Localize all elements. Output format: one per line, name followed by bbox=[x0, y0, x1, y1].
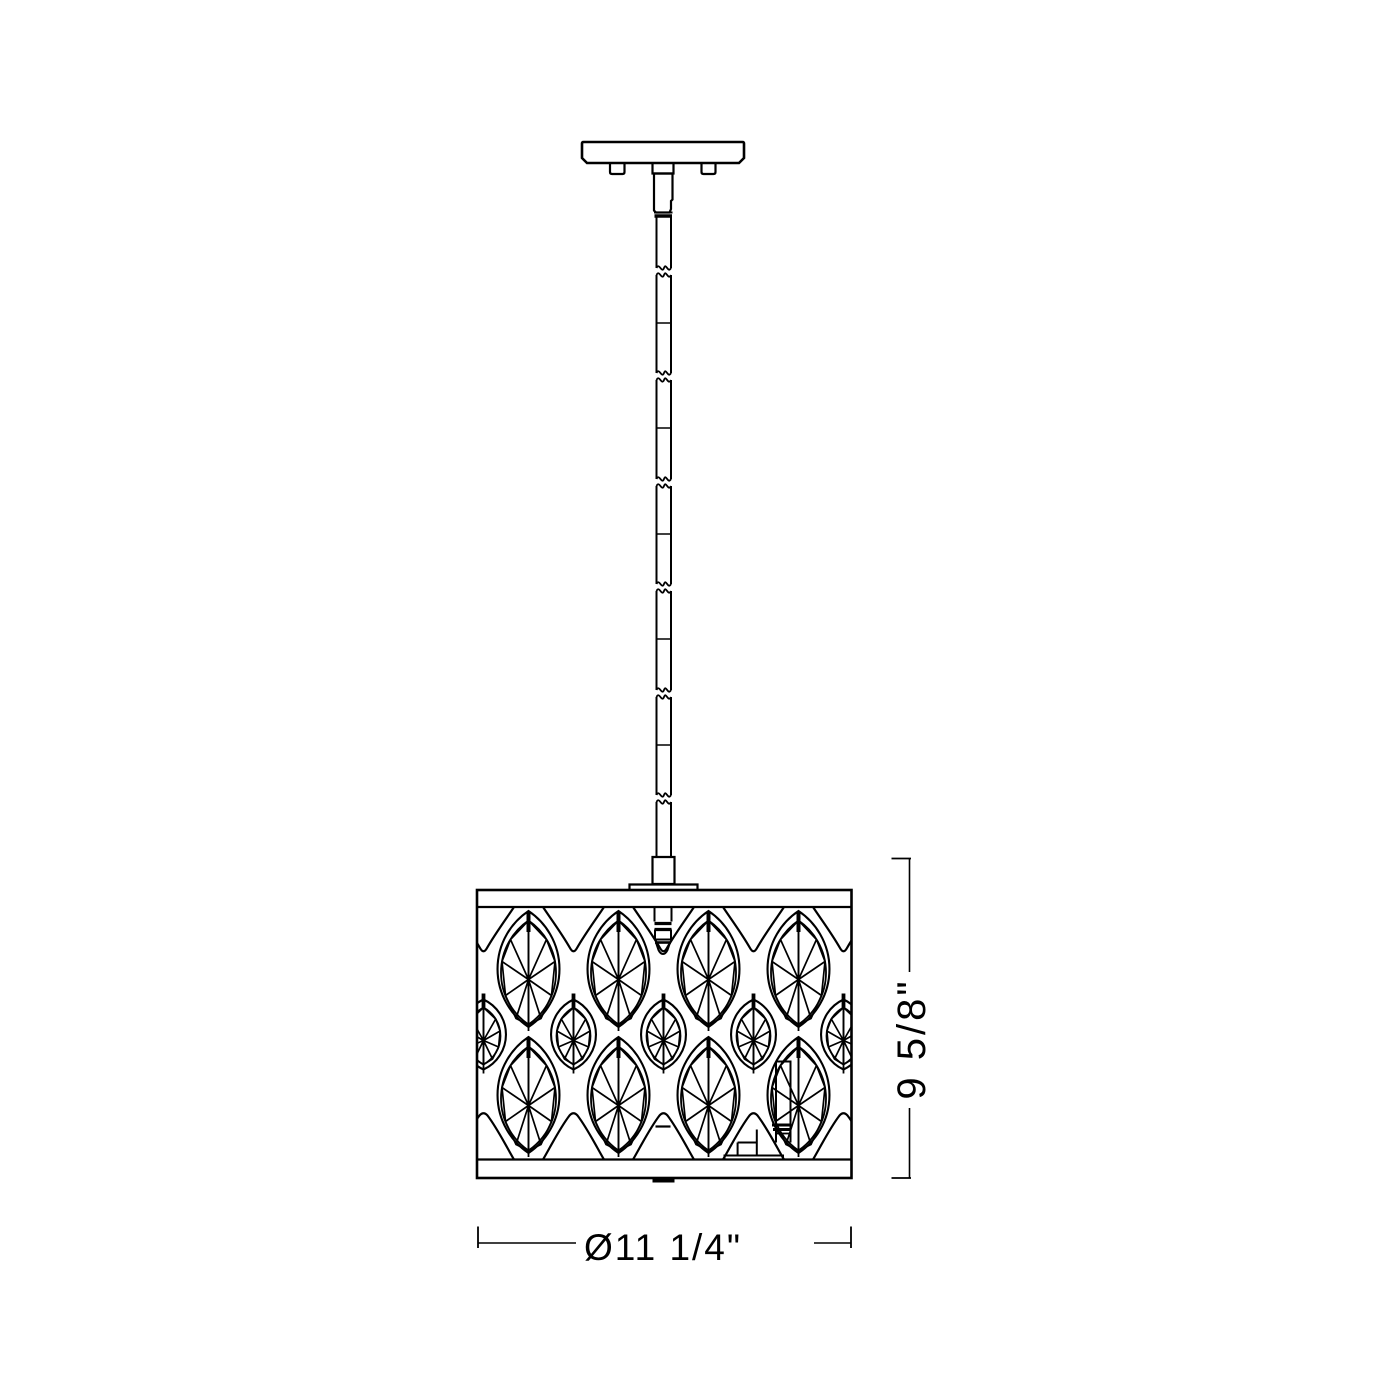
svg-text:9 5/8": 9 5/8" bbox=[890, 978, 934, 1099]
svg-text:Ø11 1/4": Ø11 1/4" bbox=[584, 1227, 742, 1268]
